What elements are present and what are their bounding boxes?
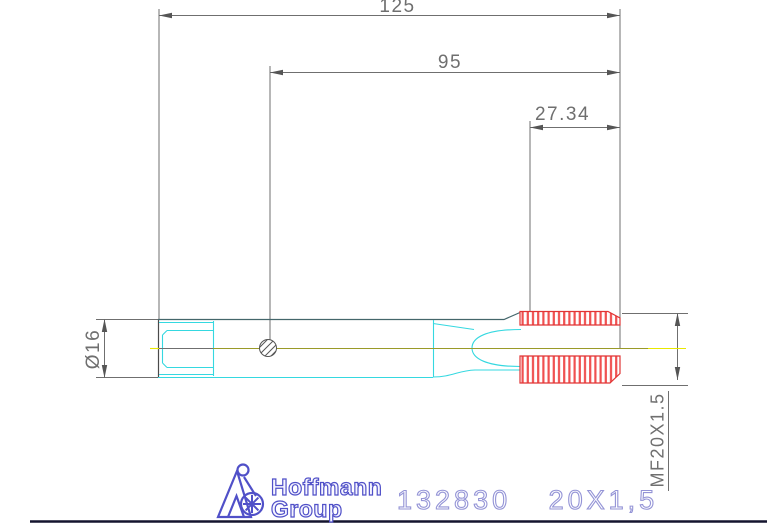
dimension-label-thread-spec: MF20X1.5 — [650, 383, 670, 498]
section-center-mark — [255, 335, 282, 365]
cad-drawing-canvas: 125 95 27.34 Ø16 MF20X1.5 Hoffmann Group… — [0, 0, 767, 523]
thread-section — [520, 312, 620, 384]
shank-top-outline — [158, 313, 520, 320]
brand-name-line1: Hoffmann — [271, 477, 382, 498]
dimension-label-shank-diameter: Ø16 — [85, 319, 105, 379]
brand-name-line2: Group — [271, 499, 343, 520]
hoffmann-logo-icon — [218, 465, 263, 518]
dimension-label-shank-length: 95 — [270, 54, 630, 71]
part-number: 132830 — [397, 488, 511, 513]
part-size: 20X1,5 — [549, 488, 659, 513]
dimension-label-thread-length: 27.34 — [515, 106, 610, 123]
part-caption: 132830 20X1,5 — [397, 488, 658, 513]
dimension-lines — [96, 9, 688, 491]
dimension-label-total-length: 125 — [165, 0, 630, 15]
